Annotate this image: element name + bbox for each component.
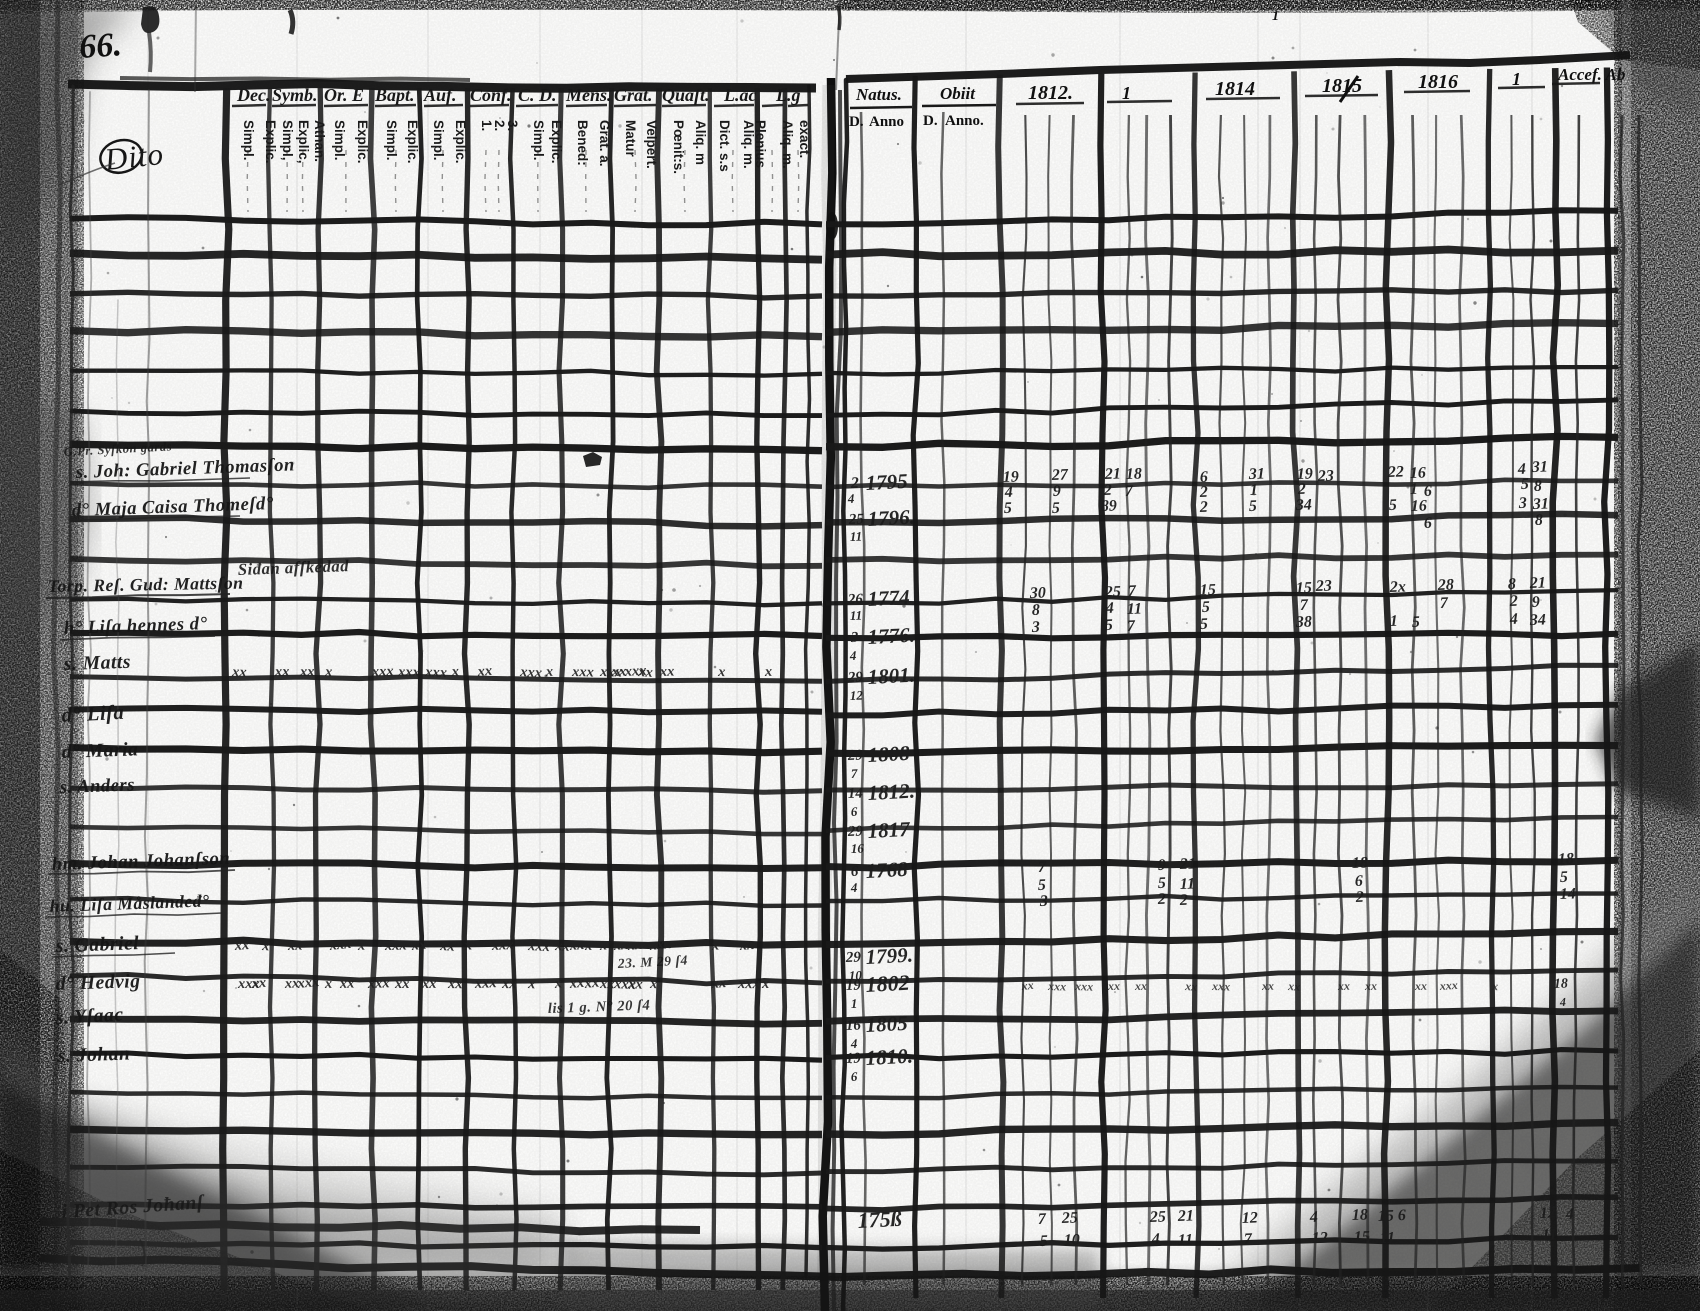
svg-text:3: 3 bbox=[1031, 619, 1041, 636]
svg-text:s. Johan: s. Johan bbox=[56, 1043, 130, 1067]
svg-text:4: 4 bbox=[1309, 1209, 1319, 1226]
svg-text:1808: 1808 bbox=[867, 741, 911, 767]
svg-text:xx: xx bbox=[583, 975, 600, 992]
svg-text:16: 16 bbox=[1410, 464, 1427, 482]
svg-text:5: 5 bbox=[1249, 498, 1258, 515]
svg-text:1795: 1795 bbox=[865, 469, 908, 495]
svg-text:xx: xx bbox=[233, 937, 250, 954]
svg-text:175ß: 175ß bbox=[857, 1206, 902, 1233]
svg-text:6: 6 bbox=[851, 864, 860, 880]
svg-text:1768: 1768 bbox=[865, 857, 909, 883]
svg-text:5: 5 bbox=[1412, 614, 1421, 631]
svg-text:xx: xx bbox=[1337, 979, 1350, 993]
svg-text:5: 5 bbox=[1040, 1233, 1049, 1250]
svg-text:xx: xx bbox=[394, 976, 410, 992]
svg-text:xx: xx bbox=[1184, 979, 1198, 994]
svg-text:xx: xx bbox=[299, 664, 315, 680]
svg-text:x: x bbox=[584, 938, 593, 954]
svg-text:7: 7 bbox=[851, 766, 859, 781]
svg-text:xx: xx bbox=[554, 938, 570, 955]
svg-text:2: 2 bbox=[1199, 499, 1209, 516]
svg-text:xx: xx bbox=[287, 938, 303, 954]
svg-text:xx: xx bbox=[659, 663, 675, 680]
svg-text:4: 4 bbox=[1004, 484, 1014, 501]
svg-text:x: x bbox=[261, 938, 270, 954]
svg-text:23: 23 bbox=[1315, 577, 1333, 595]
svg-text:23: 23 bbox=[1317, 467, 1335, 485]
svg-text:18: 18 bbox=[1352, 854, 1369, 872]
svg-text:8: 8 bbox=[1032, 602, 1041, 619]
svg-text:25: 25 bbox=[1061, 1209, 1079, 1227]
svg-text:xxx: xxx bbox=[527, 938, 551, 955]
svg-text:11: 11 bbox=[1178, 1231, 1194, 1249]
svg-text:x: x bbox=[545, 664, 554, 680]
svg-text:4: 4 bbox=[850, 1036, 859, 1051]
svg-text:xxx: xxx bbox=[648, 936, 672, 954]
svg-text:31: 31 bbox=[1248, 465, 1266, 483]
svg-text:2: 2 bbox=[1103, 482, 1113, 499]
svg-text:x: x bbox=[710, 937, 719, 954]
svg-text:xx: xx bbox=[231, 664, 247, 681]
svg-text:30: 30 bbox=[1029, 584, 1047, 602]
svg-text:3: 3 bbox=[1518, 495, 1528, 512]
svg-text:1: 1 bbox=[1272, 9, 1279, 24]
svg-text:x: x bbox=[450, 664, 459, 681]
svg-text:xxx: xxx bbox=[1074, 979, 1094, 994]
svg-text:1: 1 bbox=[1390, 613, 1399, 630]
svg-text:19: 19 bbox=[846, 977, 862, 994]
svg-text:12: 12 bbox=[1242, 1209, 1259, 1227]
svg-text:xxx: xxx bbox=[424, 664, 448, 681]
svg-text:18: 18 bbox=[1554, 977, 1569, 992]
svg-text:15: 15 bbox=[1200, 581, 1217, 599]
svg-text:5: 5 bbox=[1521, 476, 1530, 493]
svg-text:3: 3 bbox=[1039, 893, 1049, 910]
svg-text:Siđan afſkedad: Siđan afſkedad bbox=[237, 556, 349, 579]
svg-text:xx: xx bbox=[447, 976, 463, 992]
svg-text:x: x bbox=[761, 976, 769, 992]
svg-text:2: 2 bbox=[850, 475, 860, 492]
svg-text:1: 1 bbox=[1250, 482, 1259, 499]
svg-text:15 6: 15 6 bbox=[1378, 1207, 1407, 1225]
svg-text:xx: xx bbox=[1364, 979, 1377, 993]
svg-text:xx: xx bbox=[637, 664, 654, 681]
svg-text:x: x bbox=[463, 937, 473, 954]
svg-text:9: 9 bbox=[1158, 857, 1167, 874]
svg-text:xx: xx bbox=[1261, 979, 1274, 993]
svg-text:xx: xx bbox=[626, 937, 643, 954]
svg-text:2: 2 bbox=[1179, 892, 1189, 909]
svg-text:34: 34 bbox=[1295, 496, 1313, 514]
svg-text:9: 9 bbox=[1053, 483, 1062, 500]
svg-text:xx: xx bbox=[339, 976, 355, 992]
svg-text:x: x bbox=[553, 975, 563, 992]
svg-text:xxx: xxx bbox=[519, 664, 543, 681]
svg-text:xx: xx bbox=[599, 976, 615, 992]
svg-text:d° Maria: d° Maria bbox=[61, 739, 138, 763]
svg-text:21: 21 bbox=[1179, 855, 1197, 873]
svg-text:5: 5 bbox=[1389, 497, 1398, 514]
svg-text:6: 6 bbox=[851, 804, 859, 819]
svg-text:3: 3 bbox=[850, 630, 860, 646]
svg-text:8: 8 bbox=[1534, 478, 1543, 495]
svg-text:25: 25 bbox=[848, 511, 865, 528]
svg-text:x: x bbox=[527, 976, 536, 992]
svg-text:1799.: 1799. bbox=[865, 943, 913, 969]
svg-text:s. Matts: s. Matts bbox=[62, 652, 131, 675]
svg-text:xx: xx bbox=[274, 664, 290, 680]
svg-text:11: 11 bbox=[1542, 1226, 1558, 1244]
svg-text:4: 4 bbox=[847, 491, 856, 506]
svg-text:5: 5 bbox=[1560, 869, 1569, 886]
svg-text:6: 6 bbox=[851, 1069, 859, 1084]
svg-text:xx: xx bbox=[250, 975, 267, 992]
svg-text:4: 4 bbox=[849, 648, 858, 663]
svg-text:xx: xx bbox=[568, 937, 585, 954]
svg-text:4: 4 bbox=[1151, 1231, 1161, 1248]
svg-text:8: 8 bbox=[1508, 576, 1517, 593]
svg-text:4: 4 bbox=[1509, 611, 1519, 628]
svg-text:xx: xx bbox=[627, 976, 643, 993]
svg-text:xxx: xxx bbox=[490, 937, 513, 954]
svg-text:6: 6 bbox=[1424, 515, 1433, 532]
svg-text:16: 16 bbox=[851, 841, 865, 856]
svg-text:8: 8 bbox=[1535, 512, 1544, 529]
svg-text:34: 34 bbox=[1529, 611, 1547, 629]
svg-text:66.: 66. bbox=[78, 26, 123, 66]
svg-text:2: 2 bbox=[1509, 593, 1519, 610]
svg-text:xx: xx bbox=[710, 975, 727, 992]
svg-text:xx: xx bbox=[421, 976, 437, 992]
svg-text:s. Gabriel: s. Gabriel bbox=[54, 933, 139, 957]
svg-text:1: 1 bbox=[851, 996, 858, 1011]
svg-text:11: 11 bbox=[1380, 1229, 1396, 1247]
svg-text:xx: xx bbox=[738, 937, 755, 954]
svg-text:16: 16 bbox=[1411, 497, 1428, 515]
svg-text:Torp. Reſ. Gud: Mattsſon: Torp. Reſ. Gud: Mattsſon bbox=[48, 573, 244, 596]
svg-text:29: 29 bbox=[845, 949, 862, 966]
svg-text:x: x bbox=[764, 664, 773, 680]
svg-text:14: 14 bbox=[1560, 885, 1577, 903]
svg-text:1802: 1802 bbox=[865, 970, 910, 997]
svg-text:1810.: 1810. bbox=[865, 1044, 913, 1070]
svg-text:x: x bbox=[356, 938, 365, 954]
svg-text:1817: 1817 bbox=[867, 817, 912, 843]
svg-text:xx: xx bbox=[410, 937, 427, 954]
svg-text:18: 18 bbox=[1352, 1206, 1369, 1224]
svg-text:21: 21 bbox=[1529, 574, 1547, 592]
svg-text:27: 27 bbox=[1051, 466, 1070, 484]
svg-text:25: 25 bbox=[1104, 583, 1122, 601]
svg-text:14: 14 bbox=[848, 785, 864, 802]
svg-text:5: 5 bbox=[1158, 875, 1167, 892]
svg-text:s. Anders: s. Anders bbox=[58, 774, 135, 798]
svg-text:21: 21 bbox=[1177, 1207, 1195, 1225]
svg-text:5: 5 bbox=[1105, 617, 1114, 634]
svg-text:22: 22 bbox=[1387, 463, 1405, 481]
svg-text:31: 31 bbox=[1532, 495, 1550, 513]
svg-text:x: x bbox=[598, 937, 608, 954]
svg-text:5: 5 bbox=[1052, 500, 1061, 517]
svg-text:d° Hedvig: d° Hedvig bbox=[55, 971, 140, 995]
svg-text:xx: xx bbox=[1287, 979, 1301, 994]
svg-text:x: x bbox=[324, 976, 333, 992]
svg-text:xxx: xxx bbox=[1438, 978, 1458, 993]
svg-text:18: 18 bbox=[1558, 850, 1575, 868]
svg-text:2: 2 bbox=[1297, 481, 1307, 498]
svg-text:xxx: xxx bbox=[571, 664, 594, 681]
svg-text:xxx: xxx bbox=[296, 974, 320, 992]
svg-text:xx: xx bbox=[476, 663, 493, 680]
svg-text:10: 10 bbox=[1064, 1231, 1081, 1249]
svg-text:5: 5 bbox=[1202, 599, 1211, 616]
svg-text:12: 12 bbox=[850, 688, 864, 703]
svg-text:11: 11 bbox=[1180, 875, 1196, 893]
svg-text:xx: xx bbox=[1020, 978, 1034, 993]
svg-text:xx: xx bbox=[1414, 979, 1427, 993]
svg-text:xx: xx bbox=[439, 938, 455, 955]
svg-text:1805: 1805 bbox=[865, 1011, 908, 1037]
svg-text:29: 29 bbox=[847, 823, 864, 840]
svg-text:29: 29 bbox=[847, 669, 864, 686]
svg-text:x: x bbox=[1491, 979, 1498, 993]
svg-text:xx: xx bbox=[568, 975, 585, 992]
svg-text:x: x bbox=[717, 664, 726, 680]
svg-text:31: 31 bbox=[1531, 458, 1549, 476]
svg-text:xx: xx bbox=[501, 976, 517, 992]
svg-text:xxx: xxx bbox=[397, 664, 420, 680]
svg-text:2: 2 bbox=[1157, 891, 1167, 908]
svg-text:xxx: xxx bbox=[384, 938, 407, 955]
svg-text:x: x bbox=[649, 976, 658, 992]
svg-text:16: 16 bbox=[846, 1017, 862, 1034]
svg-text:2: 2 bbox=[1355, 889, 1365, 906]
svg-text:1776.: 1776. bbox=[867, 623, 915, 649]
svg-text:11: 11 bbox=[850, 529, 863, 544]
svg-text:d° Liſa: d° Liſa bbox=[61, 702, 125, 727]
svg-text:2x: 2x bbox=[1389, 578, 1407, 596]
svg-text:15: 15 bbox=[1296, 579, 1313, 597]
svg-text:25: 25 bbox=[1149, 1208, 1167, 1226]
svg-text:xxx: xxx bbox=[737, 976, 760, 992]
svg-text:38: 38 bbox=[1295, 613, 1313, 631]
svg-text:28: 28 bbox=[1437, 576, 1455, 594]
svg-text:5: 5 bbox=[1038, 877, 1047, 894]
svg-text:xxx: xxx bbox=[1047, 979, 1066, 994]
svg-text:xxx: xxx bbox=[1211, 979, 1230, 994]
svg-text:1796.: 1796. bbox=[867, 505, 915, 531]
svg-text:1: 1 bbox=[1410, 481, 1419, 498]
svg-text:1812.: 1812. bbox=[867, 779, 915, 805]
svg-text:18: 18 bbox=[1126, 465, 1143, 483]
svg-text:9: 9 bbox=[1532, 594, 1541, 611]
svg-text:11: 11 bbox=[850, 608, 863, 623]
svg-text:s. Yſaac: s. Yſaac bbox=[54, 1004, 124, 1029]
svg-text:11: 11 bbox=[1127, 600, 1143, 618]
svg-text:29: 29 bbox=[847, 747, 864, 764]
svg-text:xx: xx bbox=[1134, 979, 1147, 993]
svg-text:1801.: 1801. bbox=[867, 663, 915, 689]
svg-text:21: 21 bbox=[1104, 465, 1122, 483]
svg-text:5: 5 bbox=[1200, 616, 1209, 633]
svg-text:19: 19 bbox=[846, 1050, 862, 1067]
svg-text:12: 12 bbox=[1312, 1229, 1329, 1247]
svg-text:26: 26 bbox=[847, 591, 864, 608]
svg-text:4: 4 bbox=[1559, 995, 1566, 1009]
svg-text:x: x bbox=[324, 664, 333, 680]
svg-text:xx: xx bbox=[1107, 979, 1120, 993]
svg-text:xxx: xxx bbox=[367, 975, 390, 992]
svg-text:4: 4 bbox=[850, 880, 859, 895]
svg-text:xxx: xxx bbox=[473, 975, 496, 992]
svg-text:5: 5 bbox=[1004, 500, 1013, 517]
svg-text:4: 4 bbox=[1105, 600, 1115, 617]
svg-text:xxx: xxx bbox=[371, 663, 394, 680]
svg-text:xxx: xxx bbox=[328, 936, 352, 954]
svg-text:89: 89 bbox=[1101, 497, 1118, 515]
svg-text:6: 6 bbox=[1355, 873, 1364, 890]
svg-text:4: 4 bbox=[1565, 1206, 1575, 1223]
